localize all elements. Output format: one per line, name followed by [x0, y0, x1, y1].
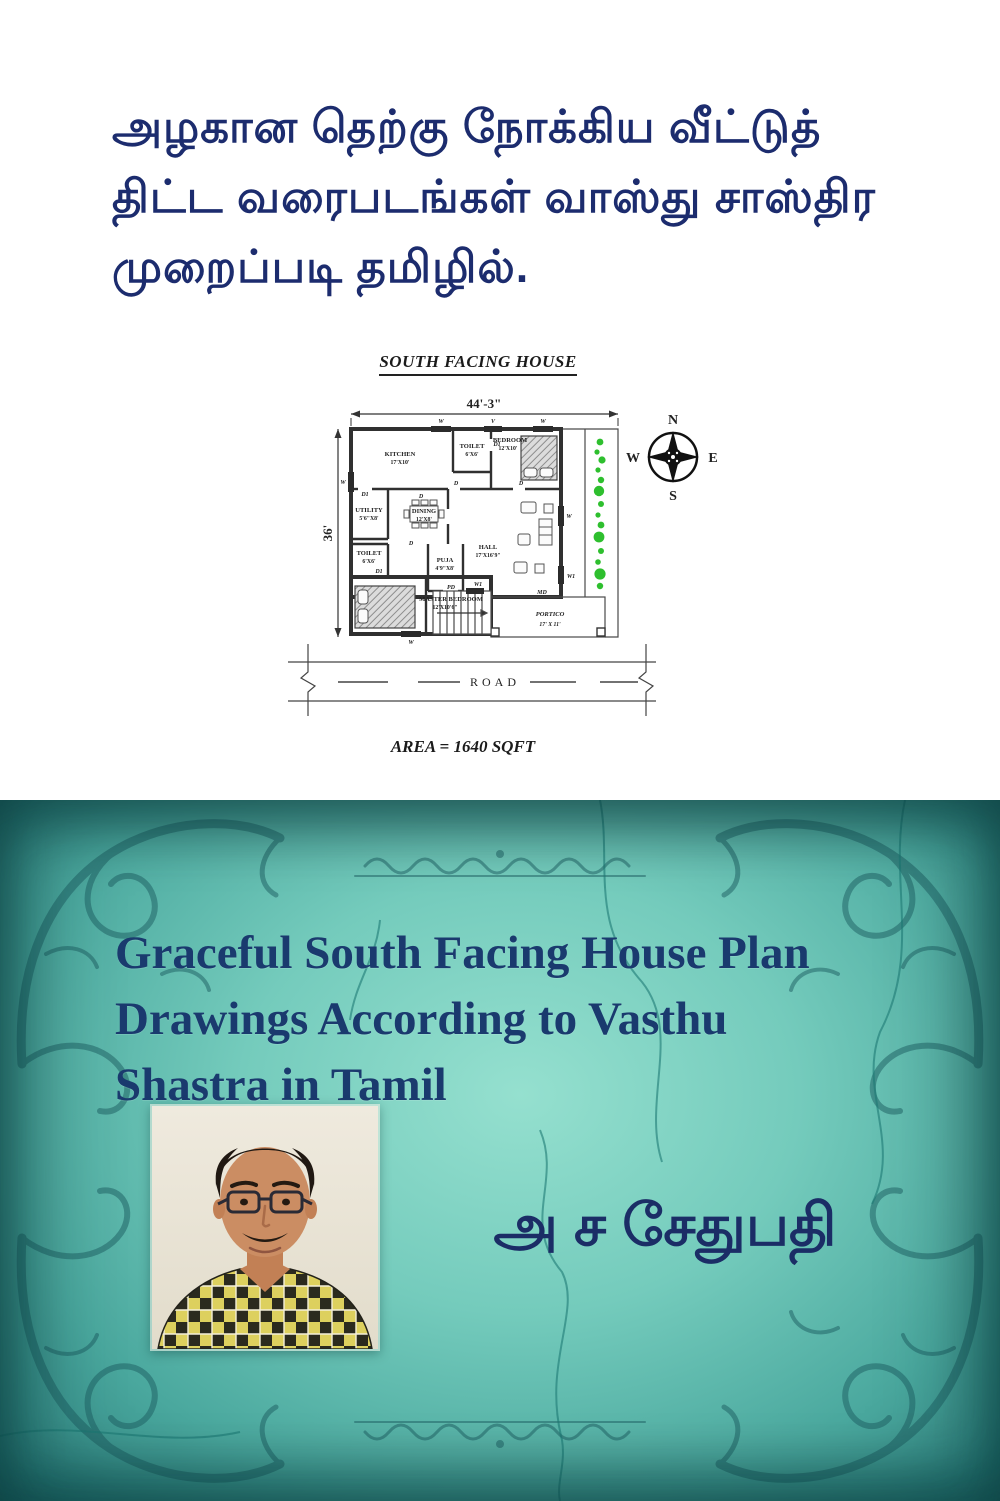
english-title-line-2: Drawings According to Vasthu — [115, 986, 935, 1052]
compound-wall — [561, 429, 618, 637]
top-dimension: 44'-3" — [351, 396, 618, 426]
room-dining-dim: 12'X8' — [416, 517, 432, 523]
english-title: Graceful South Facing House Plan Drawing… — [115, 920, 935, 1118]
compass-south-label: S — [669, 489, 677, 504]
room-toilet-left-name: TOILET — [357, 550, 382, 557]
room-hall-name: HALL — [479, 544, 498, 551]
sofa-set-icon — [514, 502, 553, 573]
puja-door-label: PD — [447, 585, 456, 591]
english-title-line-1: Graceful South Facing House Plan — [115, 920, 935, 986]
room-toilet-left-dim: 6'X6' — [362, 559, 376, 565]
main-door-label: MD — [536, 590, 547, 596]
door-label: D — [518, 481, 524, 487]
room-portico-name: PORTICO — [536, 611, 565, 618]
room-toilet-top-dim: 6'X6' — [465, 452, 479, 458]
plants-east-icon — [594, 439, 606, 590]
window-label: W — [566, 514, 572, 520]
book-cover: அழகான தெற்கு நோக்கிய வீட்டுத் திட்ட வரைப… — [0, 0, 1000, 1501]
compass-west-label: W — [626, 451, 640, 466]
room-portico-dim: 17' X 11' — [539, 622, 561, 628]
room-master-dim: 12'X10'6" — [432, 605, 457, 611]
window-label: W — [408, 640, 414, 646]
tamil-heading-line-2: திட்ட வரைபடங்கள் வாஸ்து சாஸ்திர — [112, 162, 942, 232]
room-hall-dim: 17'X16'9" — [475, 553, 500, 559]
tamil-heading: அழகான தெற்கு நோக்கிய வீட்டுத் திட்ட வரைப… — [112, 92, 942, 302]
room-dining-name: DINING — [412, 508, 436, 515]
door-label: D — [418, 494, 424, 500]
window-label: W — [540, 419, 546, 425]
compass-icon: N S W E — [626, 413, 718, 504]
compass-north-label: N — [668, 413, 678, 428]
window1-label: W1 — [567, 574, 575, 580]
room-puja-name: PUJA — [437, 557, 454, 564]
floor-plan-title-text: SOUTH FACING HOUSE — [379, 352, 576, 376]
floor-plan-title: SOUTH FACING HOUSE — [288, 352, 668, 376]
door1-label: D1 — [492, 442, 500, 448]
room-toilet-top-name: TOILET — [460, 443, 485, 450]
door1-label: D1 — [360, 492, 368, 498]
compass-east-label: E — [708, 451, 717, 466]
author-photo — [150, 1104, 380, 1351]
floor-plan: SOUTH FACING HOUSE 44'-3" — [288, 352, 718, 757]
height-dimension-label: 36' — [320, 525, 335, 542]
door-label: D — [453, 481, 459, 487]
road: ROAD — [288, 644, 656, 716]
room-utility-dim: 5'6"X8' — [359, 516, 379, 522]
floor-plan-drawing: 44'-3" 36' — [288, 394, 718, 729]
author-name: அ ச சேதுபதி — [395, 1192, 935, 1267]
room-kitchen-name: KITCHEN — [385, 451, 416, 458]
window-label: W — [340, 480, 346, 486]
road-label: ROAD — [470, 675, 520, 689]
door-label: D — [408, 541, 414, 547]
width-dimension-label: 44'-3" — [467, 396, 502, 411]
tamil-heading-line-1: அழகான தெற்கு நோக்கிய வீட்டுத் — [112, 92, 942, 162]
room-bedroom-dim: 12'X10' — [498, 446, 517, 452]
room-puja-dim: 4'9"X8' — [435, 566, 455, 572]
bed-icon-master — [355, 586, 415, 628]
left-dimension: 36' — [320, 429, 342, 637]
room-kitchen-dim: 17'X10' — [390, 460, 409, 466]
tamil-heading-line-3: முறைப்படி தமிழில். — [112, 232, 942, 302]
area-label: AREA = 1640 SQFT — [343, 737, 583, 757]
ventilator-label: V — [491, 419, 496, 425]
room-master-name: MASTER BEDROOM — [419, 596, 483, 603]
door1-label: D1 — [374, 569, 382, 575]
crack-texture — [0, 800, 905, 1501]
window1-label: W1 — [474, 582, 482, 588]
window-label: W — [438, 419, 444, 425]
room-utility-name: UTILITY — [355, 507, 383, 514]
